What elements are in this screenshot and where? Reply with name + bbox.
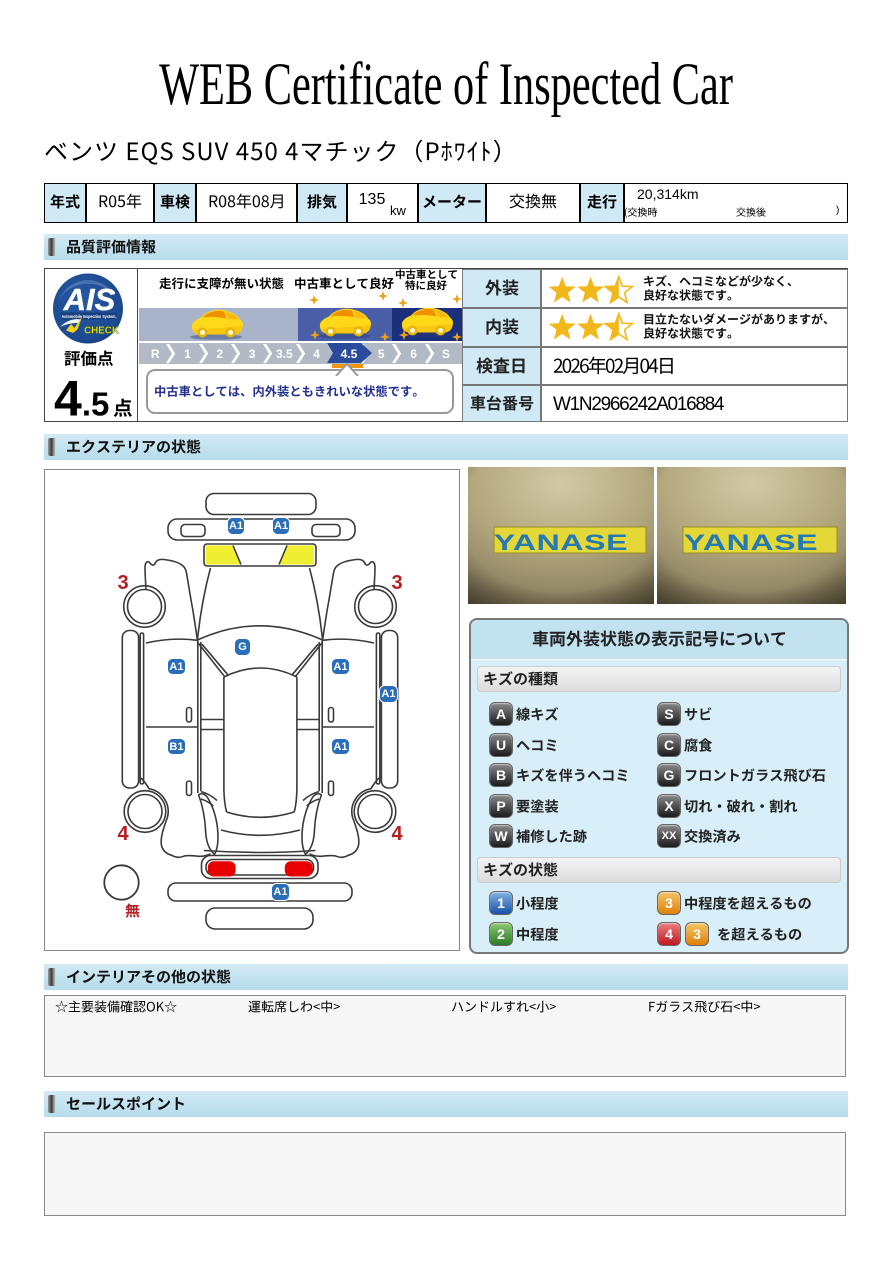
svg-text:WEB Certificate of Inspected C: WEB Certificate of Inspected Car [159, 52, 733, 118]
svg-text:CHECK: CHECK [84, 326, 119, 337]
svg-text:Automobile Inspection System,: Automobile Inspection System, [62, 314, 117, 319]
svg-text:YANASE: YANASE [494, 530, 628, 555]
svg-text:4.5: 4.5 [54, 371, 109, 427]
svg-text:YANASE: YANASE [684, 530, 818, 555]
svg-text:AIS: AIS [63, 282, 116, 317]
